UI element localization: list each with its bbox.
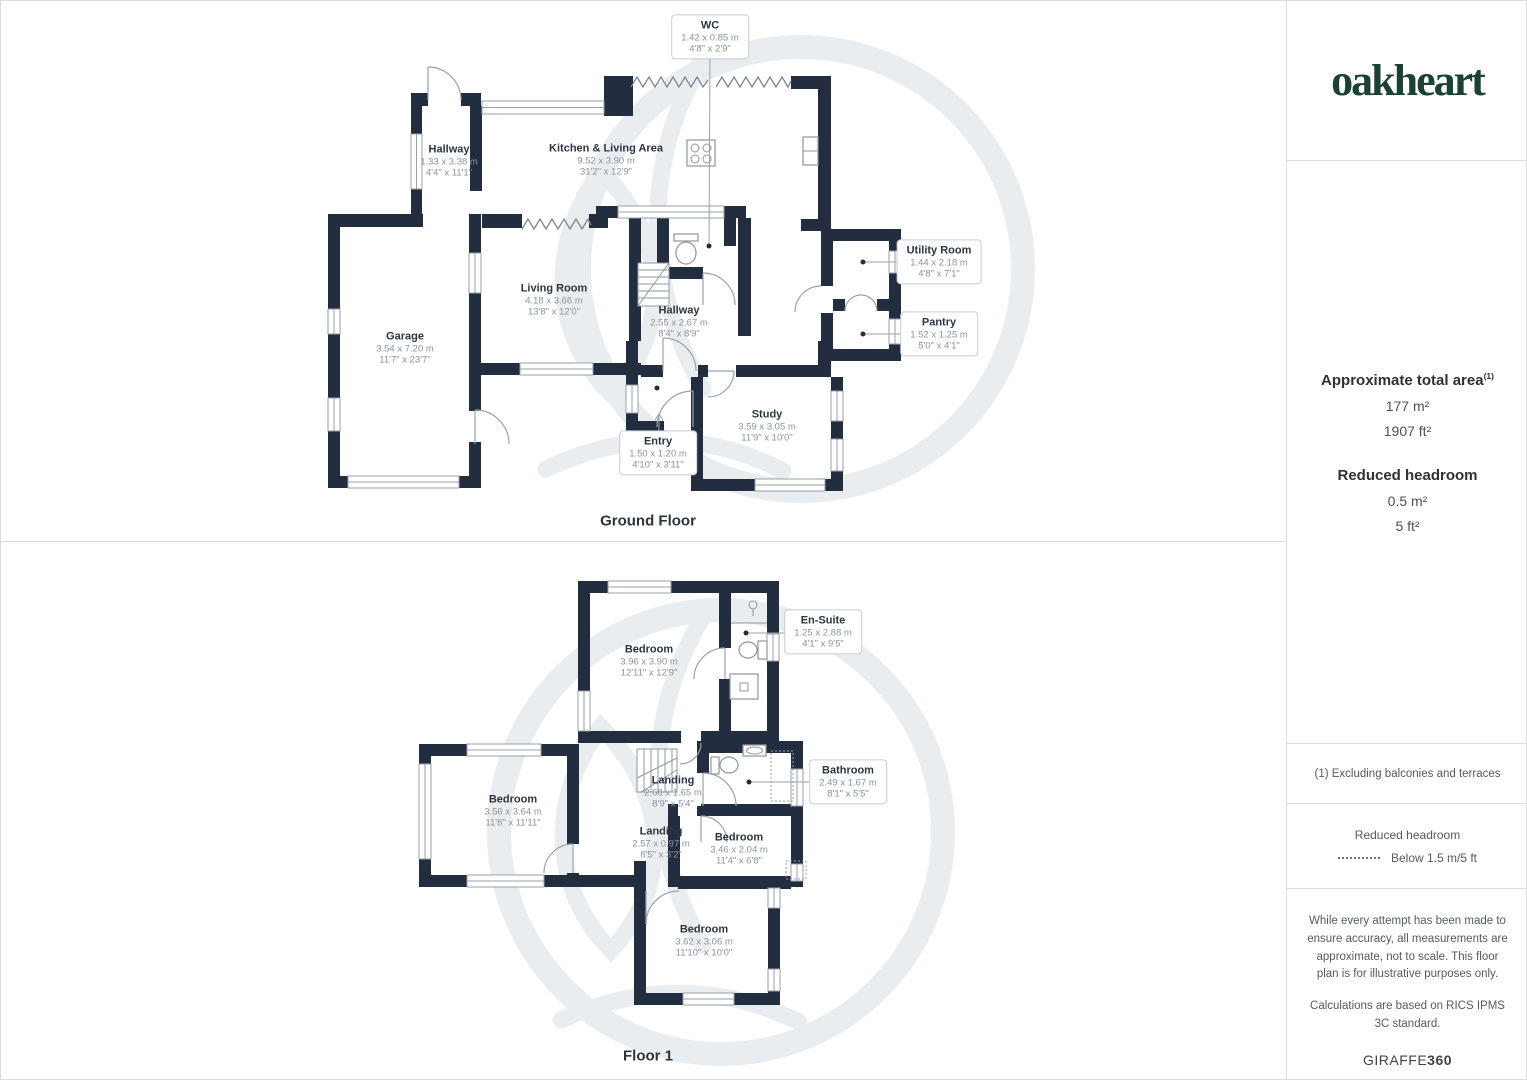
disclaimer-section: While every attempt has been made to ens… xyxy=(1287,888,1527,1079)
hallway-north-label: Hallway 1.33 x 3.38 m 4'4" x 11'1" xyxy=(420,143,478,178)
oakheart-logo: oakheart xyxy=(1331,55,1484,106)
toilet-icon xyxy=(758,641,767,659)
floor-1-plan-svg xyxy=(1,542,1286,1079)
floorplan-page: WC 1.42 x 0.85 m 4'8" x 2'9" Hallway 1.3… xyxy=(0,0,1527,1080)
stove-icon xyxy=(687,140,715,166)
hallway-center-label: Hallway 2.55 x 2.67 m 8'4" x 8'9" xyxy=(650,304,708,339)
en-suite-label: En-Suite 1.25 x 2.88 m 4'1" x 9'5" xyxy=(784,609,862,654)
legend-row: Below 1.5 m/5 ft xyxy=(1338,851,1477,865)
total-area-m2: 177 m² xyxy=(1386,398,1430,414)
floor-1-panel: Bedroom 3.96 x 3.90 m 12'11" x 12'9" En-… xyxy=(1,542,1286,1079)
ground-floor-title: Ground Floor xyxy=(600,513,696,530)
toilet-icon xyxy=(674,234,698,241)
bedroom-1-label: Bedroom 3.96 x 3.90 m 12'11" x 12'9" xyxy=(620,643,678,678)
footnote-section: (1) Excluding balconies and terraces xyxy=(1287,743,1527,803)
living-room-label: Living Room 4.18 x 3.66 m 13'8" x 12'0" xyxy=(521,282,588,317)
pantry-label: Pantry 1.52 x 1.25 m 5'0" x 4'1" xyxy=(900,311,978,356)
plans-area: WC 1.42 x 0.85 m 4'8" x 2'9" Hallway 1.3… xyxy=(1,1,1286,1079)
legend-value: Below 1.5 m/5 ft xyxy=(1391,851,1477,865)
bathroom-label: Bathroom 2.49 x 1.67 m 8'1" x 5'5" xyxy=(809,759,887,804)
disclaimer-accuracy: While every attempt has been made to ens… xyxy=(1307,913,1508,984)
reduced-headroom-m2: 0.5 m² xyxy=(1337,493,1477,509)
total-area-ft2: 1907 ft² xyxy=(1384,423,1431,439)
area-section: Approximate total area(1) 177 m² 1907 ft… xyxy=(1287,161,1527,743)
landing-2-label: Landing 2.57 x 0.97 m 8'5" x 3'2" xyxy=(632,825,690,860)
landing-1-label: Landing 2.68 x 1.65 m 8'9" x 5'4" xyxy=(644,774,702,809)
stairs xyxy=(638,263,669,306)
study-label: Study 3.59 x 3.05 m 11'9" x 10'0" xyxy=(738,408,796,443)
bedroom-2-label: Bedroom 3.56 x 3.64 m 11'8" x 11'11" xyxy=(484,793,542,828)
dotted-line-sample xyxy=(1338,856,1380,859)
disclaimer-standard: Calculations are based on RICS IPMS 3C s… xyxy=(1307,998,1508,1034)
logo-section: oakheart xyxy=(1287,1,1527,161)
footnote-text: (1) Excluding balconies and terraces xyxy=(1314,768,1500,780)
shower-tray-icon xyxy=(730,674,758,699)
legend-title: Reduced headroom xyxy=(1355,828,1460,842)
utility-room-label: Utility Room 1.44 x 2.18 m 4'8" x 7'1" xyxy=(897,239,982,284)
floor-1-title: Floor 1 xyxy=(623,1048,673,1065)
footnote-marker: (1) xyxy=(1484,371,1494,381)
reduced-headroom-zone xyxy=(771,751,793,801)
entry-label: Entry 1.50 x 1.20 m 4'10" x 3'11" xyxy=(619,430,697,475)
toilet-icon xyxy=(711,757,719,774)
ground-floor-panel: WC 1.42 x 0.85 m 4'8" x 2'9" Hallway 1.3… xyxy=(1,1,1286,542)
kitchen-living-label: Kitchen & Living Area 9.52 x 3.90 m 31'2… xyxy=(549,142,663,177)
total-area-title: Approximate total area(1) xyxy=(1321,371,1494,389)
info-sidebar: oakheart Approximate total area(1) 177 m… xyxy=(1286,1,1527,1079)
reduced-headroom-title: Reduced headroom xyxy=(1337,467,1477,484)
legend-section: Reduced headroom Below 1.5 m/5 ft xyxy=(1287,803,1527,888)
garage-label: Garage 3.54 x 7.20 m 11'7" x 23'7" xyxy=(376,330,434,365)
giraffe360-logo: GIRAFFE360 xyxy=(1307,1050,1508,1072)
wc-label: WC 1.42 x 0.85 m 4'8" x 2'9" xyxy=(671,14,749,59)
reduced-headroom-ft2: 5 ft² xyxy=(1337,518,1477,534)
reduced-headroom-block: Reduced headroom 0.5 m² 5 ft² xyxy=(1337,467,1477,534)
bedroom-3-label: Bedroom 3.46 x 2.04 m 11'4" x 6'8" xyxy=(710,831,768,866)
bedroom-4-label: Bedroom 3.62 x 3.06 m 11'10" x 10'0" xyxy=(675,923,733,958)
